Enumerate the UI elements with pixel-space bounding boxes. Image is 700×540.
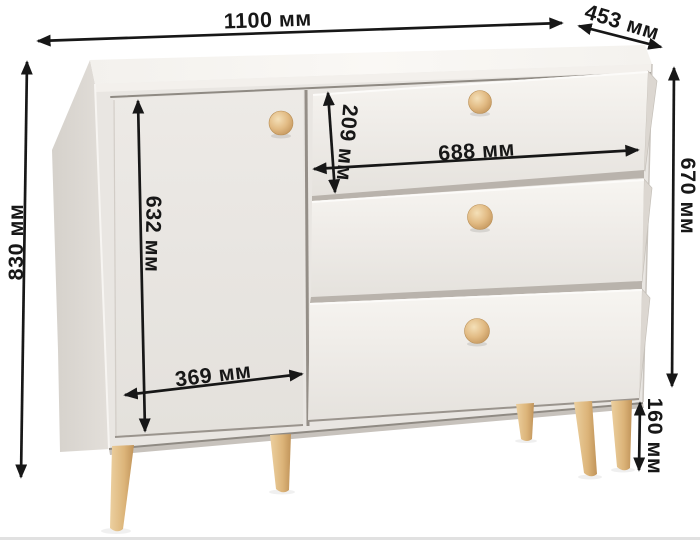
dimension-diagram: 1100 мм 453 мм 830 мм 670 мм 632 мм 369 … — [0, 0, 700, 540]
dimension-label-overall-width: 1100 мм — [223, 6, 312, 33]
dimension-label-body-height: 670 мм — [676, 158, 700, 235]
dimension-label-overall-height: 830 мм — [4, 204, 28, 281]
dimension-label-leg-height: 160 мм — [643, 398, 667, 475]
leg-back-middle — [516, 403, 534, 441]
leg-front-left — [110, 445, 134, 531]
dimension-label-door-height: 632 мм — [140, 196, 165, 273]
leg-front-right — [611, 400, 632, 470]
floor-shadows — [101, 439, 635, 534]
door-drawer-divider — [306, 90, 308, 426]
leg-front-middle — [270, 434, 291, 492]
diagram-canvas: 1100 мм 453 мм 830 мм 670 мм 632 мм 369 … — [0, 0, 700, 540]
drawer-1-knob — [469, 91, 492, 117]
arrow-leg-height — [639, 403, 640, 470]
arrow-body-height — [672, 68, 674, 386]
